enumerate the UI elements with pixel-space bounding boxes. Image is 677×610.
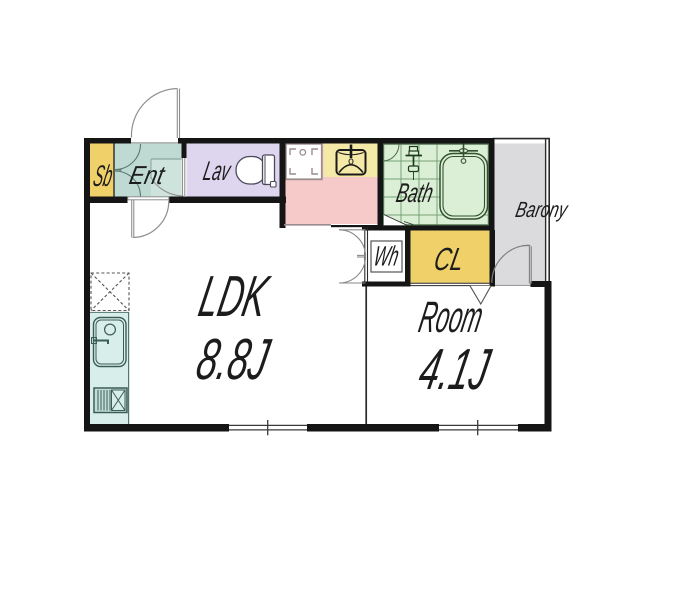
svg-text:Room: Room [415, 293, 487, 341]
svg-text:4.1J: 4.1J [414, 338, 496, 402]
svg-text:Barony: Barony [513, 197, 571, 222]
svg-text:Bath: Bath [394, 177, 437, 208]
svg-text:8.8J: 8.8J [191, 328, 275, 392]
